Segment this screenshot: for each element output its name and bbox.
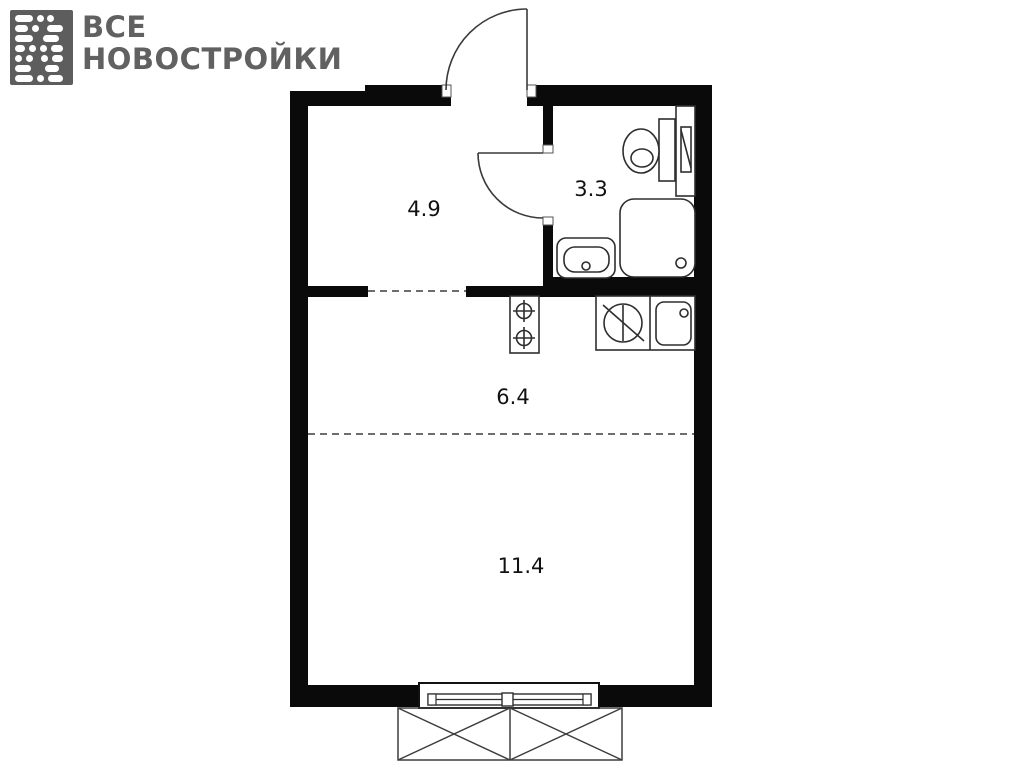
wall-bathroom-bottom: [553, 277, 694, 297]
balcony-icon: [398, 708, 622, 760]
wall-bathroom-partition-top: [543, 106, 553, 145]
floor-plan: 4.9 3.3 6.4 11.4: [0, 0, 1019, 768]
wall-bottom-left: [290, 685, 419, 707]
room-label-bathroom: 3.3: [574, 177, 607, 201]
kitchen-sink-icon: [656, 302, 691, 345]
bathroom-jamb-bottom: [543, 217, 553, 225]
wall-bottom-right: [598, 685, 712, 707]
vent-shaft-icon: [676, 106, 695, 196]
wall-top-left-a: [290, 91, 365, 106]
room-label-hallway: 4.9: [407, 197, 440, 221]
stove-icon: [510, 296, 539, 353]
entrance-door-icon: [446, 9, 527, 90]
washbasin-icon: [557, 238, 615, 278]
toilet-icon: [623, 119, 675, 181]
entrance-jamb-right: [527, 85, 536, 97]
shower-tray-icon: [620, 199, 695, 277]
wall-top-right: [527, 85, 712, 106]
window-icon: [419, 683, 599, 708]
room-labels: 4.9 3.3 6.4 11.4: [407, 177, 607, 578]
wall-left: [290, 91, 308, 707]
bathroom-door-icon: [478, 153, 543, 218]
wall-top-left-b: [365, 85, 451, 106]
room-label-living-room: 11.4: [498, 554, 545, 578]
floor-plan-page: { "logo": { "line1": "ВСЕ", "line2": "НО…: [0, 0, 1019, 768]
wall-bathroom-partition-bottom: [543, 225, 553, 297]
room-label-kitchen: 6.4: [496, 385, 529, 409]
wall-right: [694, 85, 712, 707]
wall-hall-kitchen-left: [308, 286, 368, 297]
bathroom-jamb-top: [543, 145, 553, 153]
